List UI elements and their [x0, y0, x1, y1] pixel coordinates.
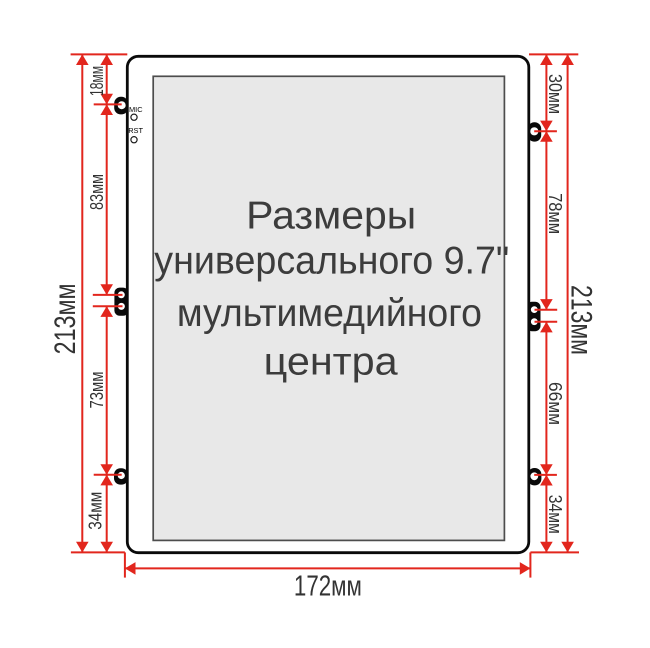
svg-text:30мм: 30мм: [545, 74, 565, 114]
svg-text:213мм: 213мм: [565, 285, 598, 355]
svg-text:центра: центра: [264, 341, 399, 384]
svg-text:MIC: MIC: [129, 105, 143, 114]
svg-text:RST: RST: [128, 126, 143, 135]
svg-text:172мм: 172мм: [294, 571, 362, 603]
svg-text:универсального 9.7": универсального 9.7": [154, 240, 509, 283]
svg-text:34мм: 34мм: [545, 495, 565, 534]
svg-text:Размеры: Размеры: [246, 194, 416, 237]
svg-text:мультимедийного: мультимедийного: [177, 292, 482, 335]
svg-text:66мм: 66мм: [545, 382, 565, 425]
svg-text:18мм: 18мм: [87, 66, 107, 96]
svg-text:83мм: 83мм: [87, 174, 107, 210]
svg-text:34мм: 34мм: [86, 492, 106, 530]
svg-text:78мм: 78мм: [545, 193, 565, 234]
svg-text:213мм: 213мм: [49, 283, 82, 354]
svg-text:73мм: 73мм: [87, 372, 107, 409]
